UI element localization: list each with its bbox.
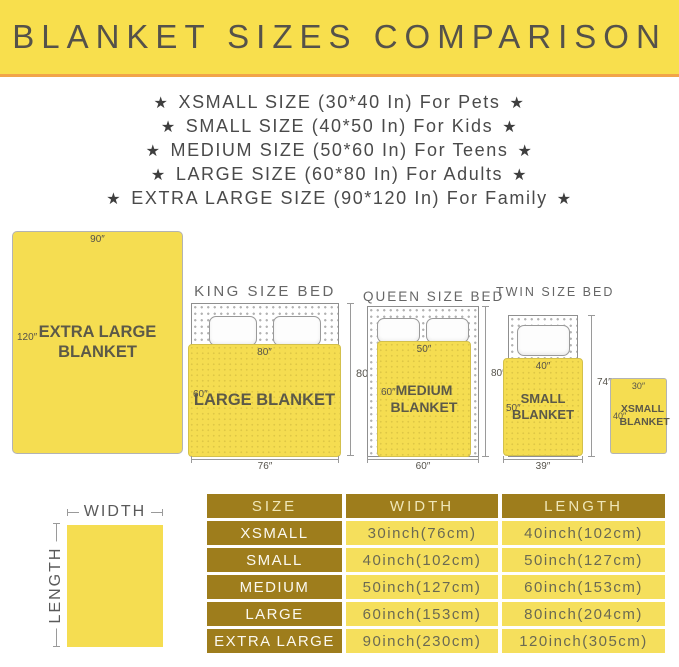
star-icon: ★ — [502, 119, 518, 136]
star-icon: ★ — [161, 119, 177, 136]
table-row-length: 120inch(305cm) — [502, 629, 665, 653]
star-icon: ★ — [146, 143, 162, 160]
size-list-label: MEDIUM SIZE (50*60 In) For Teens — [171, 140, 509, 160]
queen-bed-width-dim-line — [367, 459, 479, 460]
table-row-width: 50inch(127cm) — [346, 575, 498, 599]
medium-blanket-width-dim: 50″ — [378, 344, 470, 355]
infographic-canvas: BLANKET SIZES COMPARISON ★XSMALL SIZE (3… — [0, 0, 679, 667]
queen-bed-title: QUEEN SIZE BED — [363, 289, 483, 304]
star-icon: ★ — [151, 167, 167, 184]
large-blanket: 80″ 60″ LARGE BLANKET — [188, 344, 341, 457]
size-list: ★XSMALL SIZE (30*40 In) For Pets★ ★SMALL… — [0, 91, 679, 211]
king-bed-width-dim: 76″ — [191, 461, 339, 472]
twin-bed-height-dim-line — [591, 315, 592, 457]
extra-large-blanket: 90″ 120″ EXTRA LARGE BLANKET — [12, 231, 183, 454]
legend-length-label: LENGTH — [47, 542, 65, 629]
star-icon: ★ — [512, 167, 528, 184]
header-banner: BLANKET SIZES COMPARISON — [0, 0, 679, 77]
xsmall-blanket-length-dim: 40″ — [613, 411, 626, 421]
size-list-label: LARGE SIZE (60*80 In) For Adults — [176, 164, 503, 184]
star-icon: ★ — [557, 191, 573, 208]
extra-large-blanket-width-dim: 90″ — [13, 234, 182, 245]
table-row-size: LARGE — [207, 602, 342, 626]
legend-blanket-swatch — [67, 525, 163, 647]
pillow — [273, 316, 321, 346]
twin-bed-width-dim-line — [503, 459, 583, 460]
legend-width: WIDTH — [67, 503, 163, 521]
size-list-label: EXTRA LARGE SIZE (90*120 In) For Family — [131, 188, 548, 208]
xsmall-blanket-label: XSMALL BLANKET — [620, 403, 666, 428]
star-icon: ★ — [106, 191, 122, 208]
pillow — [517, 325, 570, 356]
extra-large-blanket-label: EXTRA LARGE BLANKET — [33, 323, 163, 363]
xsmall-blanket: 30″ 40″ XSMALL BLANKET — [610, 378, 667, 454]
table-row-width: 40inch(102cm) — [346, 548, 498, 572]
table-row-length: 60inch(153cm) — [502, 575, 665, 599]
xsmall-blanket-width-dim: 30″ — [611, 381, 666, 391]
star-icon: ★ — [517, 143, 533, 160]
medium-blanket: 50″ 60″ MEDIUM BLANKET — [377, 341, 471, 457]
extra-large-blanket-length-dim: 120″ — [17, 332, 37, 343]
list-item: ★SMALL SIZE (40*50 In) For Kids★ — [0, 115, 679, 139]
star-icon: ★ — [510, 95, 526, 112]
star-icon: ★ — [154, 95, 170, 112]
table-row-size: EXTRA LARGE — [207, 629, 342, 653]
queen-bed-height-dim-line — [485, 306, 486, 457]
list-item: ★EXTRA LARGE SIZE (90*120 In) For Family… — [0, 187, 679, 211]
table-header-length: LENGTH — [502, 494, 665, 518]
twin-bed-width-dim: 39″ — [503, 461, 583, 472]
table-row-length: 40inch(102cm) — [502, 521, 665, 545]
table-row-size: SMALL — [207, 548, 342, 572]
list-item: ★LARGE SIZE (60*80 In) For Adults★ — [0, 163, 679, 187]
table-row-width: 60inch(153cm) — [346, 602, 498, 626]
table-row-length: 80inch(204cm) — [502, 602, 665, 626]
large-blanket-length-dim: 60″ — [193, 389, 208, 400]
pillow — [426, 318, 469, 343]
table-header-size: SIZE — [207, 494, 342, 518]
king-bed-width-dim-line — [191, 459, 339, 460]
table-row-width: 90inch(230cm) — [346, 629, 498, 653]
page-title: BLANKET SIZES COMPARISON — [12, 18, 667, 56]
pillow — [209, 316, 257, 346]
size-list-label: SMALL SIZE (40*50 In) For Kids — [186, 116, 493, 136]
queen-bed-width-dim: 60″ — [367, 461, 479, 472]
size-list-label: XSMALL SIZE (30*40 In) For Pets — [178, 92, 500, 112]
table-header-width: WIDTH — [346, 494, 498, 518]
list-item: ★XSMALL SIZE (30*40 In) For Pets★ — [0, 91, 679, 115]
medium-blanket-label: MEDIUM BLANKET — [385, 382, 463, 416]
twin-bed-title: TWIN SIZE BED — [496, 285, 596, 299]
medium-blanket-length-dim: 60″ — [381, 387, 396, 398]
table-row-size: XSMALL — [207, 521, 342, 545]
table-row-size: MEDIUM — [207, 575, 342, 599]
king-bed-height-dim-line — [350, 303, 351, 456]
pillow — [377, 318, 420, 343]
large-blanket-label: LARGE BLANKET — [194, 391, 335, 411]
table-row-length: 50inch(127cm) — [502, 548, 665, 572]
list-item: ★MEDIUM SIZE (50*60 In) For Teens★ — [0, 139, 679, 163]
legend-width-label: WIDTH — [79, 503, 151, 521]
large-blanket-width-dim: 80″ — [189, 347, 340, 358]
small-blanket-length-dim: 50″ — [506, 403, 521, 414]
king-bed-title: KING SIZE BED — [190, 283, 340, 300]
size-table: SIZE WIDTH LENGTH XSMALL 30inch(76cm) 40… — [207, 494, 665, 653]
small-blanket: 40″ 50″ SMALL BLANKET — [503, 358, 583, 456]
small-blanket-width-dim: 40″ — [504, 361, 582, 372]
table-row-width: 30inch(76cm) — [346, 521, 498, 545]
